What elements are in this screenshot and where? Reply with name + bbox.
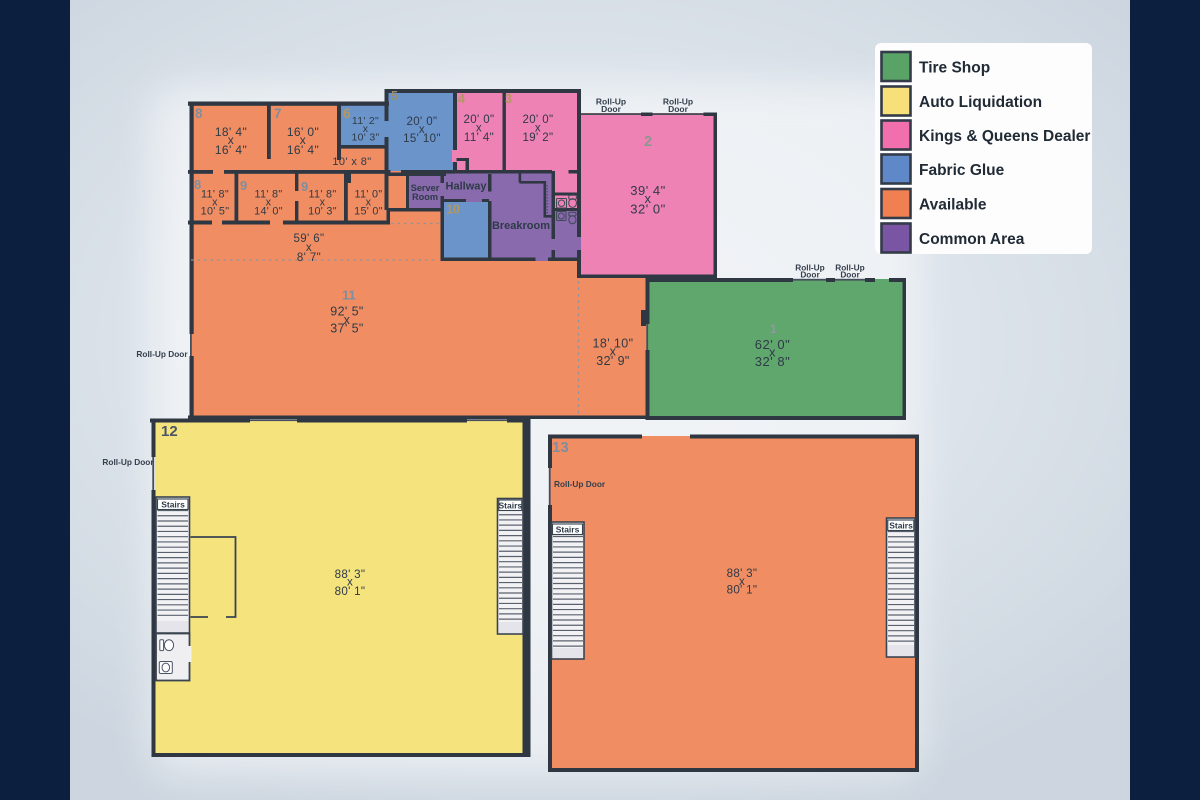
svg-text:10: 10 xyxy=(446,203,460,217)
svg-text:32' 8": 32' 8" xyxy=(755,354,790,369)
svg-text:Stairs: Stairs xyxy=(556,525,580,535)
svg-text:16' 4": 16' 4" xyxy=(215,143,247,157)
svg-text:10' 3": 10' 3" xyxy=(352,132,380,144)
svg-text:Roll-Up Door: Roll-Up Door xyxy=(136,349,188,359)
svg-text:5: 5 xyxy=(391,89,398,103)
svg-text:8: 8 xyxy=(195,106,203,121)
svg-text:37' 5": 37' 5" xyxy=(330,322,364,336)
svg-text:80' 1": 80' 1" xyxy=(335,585,366,598)
svg-text:Door: Door xyxy=(800,270,820,280)
svg-text:9: 9 xyxy=(301,179,308,194)
svg-text:14' 0": 14' 0" xyxy=(254,206,283,218)
svg-text:11' 4": 11' 4" xyxy=(464,132,494,144)
svg-text:Roll-Up Door: Roll-Up Door xyxy=(102,457,154,467)
svg-text:80' 1": 80' 1" xyxy=(727,584,758,597)
svg-text:Stairs: Stairs xyxy=(161,500,185,510)
svg-text:1: 1 xyxy=(770,322,777,336)
svg-text:10' x 8": 10' x 8" xyxy=(332,156,371,168)
svg-text:15' 10": 15' 10" xyxy=(403,133,441,145)
svg-text:Fabric Glue: Fabric Glue xyxy=(919,162,1005,179)
svg-text:Tire Shop: Tire Shop xyxy=(919,60,990,77)
svg-text:Available: Available xyxy=(919,197,987,214)
svg-text:12: 12 xyxy=(161,423,178,440)
svg-text:7: 7 xyxy=(274,106,282,121)
svg-text:19' 2": 19' 2" xyxy=(522,132,553,144)
svg-text:15' 0": 15' 0" xyxy=(354,206,383,218)
svg-text:Roll-Up Door: Roll-Up Door xyxy=(554,479,606,489)
svg-text:8' 7": 8' 7" xyxy=(297,252,321,264)
svg-text:10' 3": 10' 3" xyxy=(308,206,337,218)
svg-text:32' 0": 32' 0" xyxy=(630,202,665,217)
svg-text:10' 5": 10' 5" xyxy=(201,206,230,218)
svg-text:Door: Door xyxy=(840,270,860,280)
svg-text:Hallway: Hallway xyxy=(446,181,488,193)
svg-text:Room: Room xyxy=(412,192,438,202)
svg-text:11: 11 xyxy=(342,288,356,303)
svg-text:Stairs: Stairs xyxy=(889,521,913,531)
svg-text:32' 9": 32' 9" xyxy=(596,354,630,368)
svg-text:4: 4 xyxy=(458,92,465,106)
svg-text:6: 6 xyxy=(343,106,351,121)
svg-text:Door: Door xyxy=(601,104,622,114)
svg-text:2: 2 xyxy=(644,134,652,150)
svg-text:9: 9 xyxy=(240,178,247,193)
svg-text:16' 4": 16' 4" xyxy=(287,143,319,157)
svg-text:Auto Liquidation: Auto Liquidation xyxy=(919,94,1042,111)
svg-text:13: 13 xyxy=(552,439,569,456)
svg-text:Stairs: Stairs xyxy=(498,501,522,511)
svg-text:Common Area: Common Area xyxy=(919,231,1025,248)
svg-text:Kings & Queens Dealer: Kings & Queens Dealer xyxy=(919,128,1090,145)
svg-text:Door: Door xyxy=(668,104,689,114)
svg-text:3: 3 xyxy=(505,92,512,106)
svg-text:Breakroom: Breakroom xyxy=(492,220,550,232)
